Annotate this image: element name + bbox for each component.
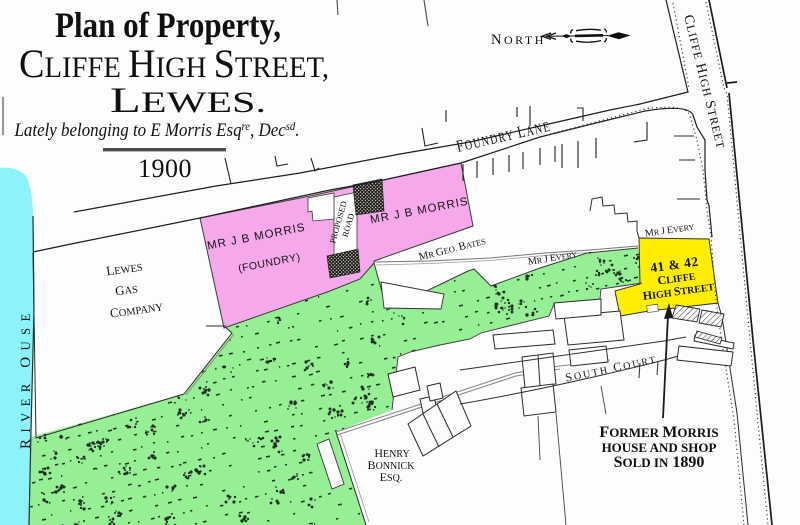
svg-text:RIVER OUSE: RIVER OUSE xyxy=(18,307,34,449)
svg-text:BONNICK: BONNICK xyxy=(368,458,416,472)
svg-text:ESQ.: ESQ. xyxy=(380,470,403,484)
svg-text:FORMER MORRIS: FORMER MORRIS xyxy=(599,424,718,441)
svg-text:Lately belonging to E Morris E: Lately belonging to E Morris Esqre, Decs… xyxy=(14,119,300,141)
svg-text:HOUSE AND SHOP: HOUSE AND SHOP xyxy=(602,440,717,455)
svg-text:Plan of Property,: Plan of Property, xyxy=(55,5,281,45)
svg-text:LEWES.: LEWES. xyxy=(110,80,266,120)
svg-text:HENRY: HENRY xyxy=(374,446,409,460)
svg-text:1900: 1900 xyxy=(138,154,192,183)
svg-text:NORTH: NORTH xyxy=(491,32,546,48)
svg-text:SOLD IN 1890: SOLD IN 1890 xyxy=(614,454,705,471)
